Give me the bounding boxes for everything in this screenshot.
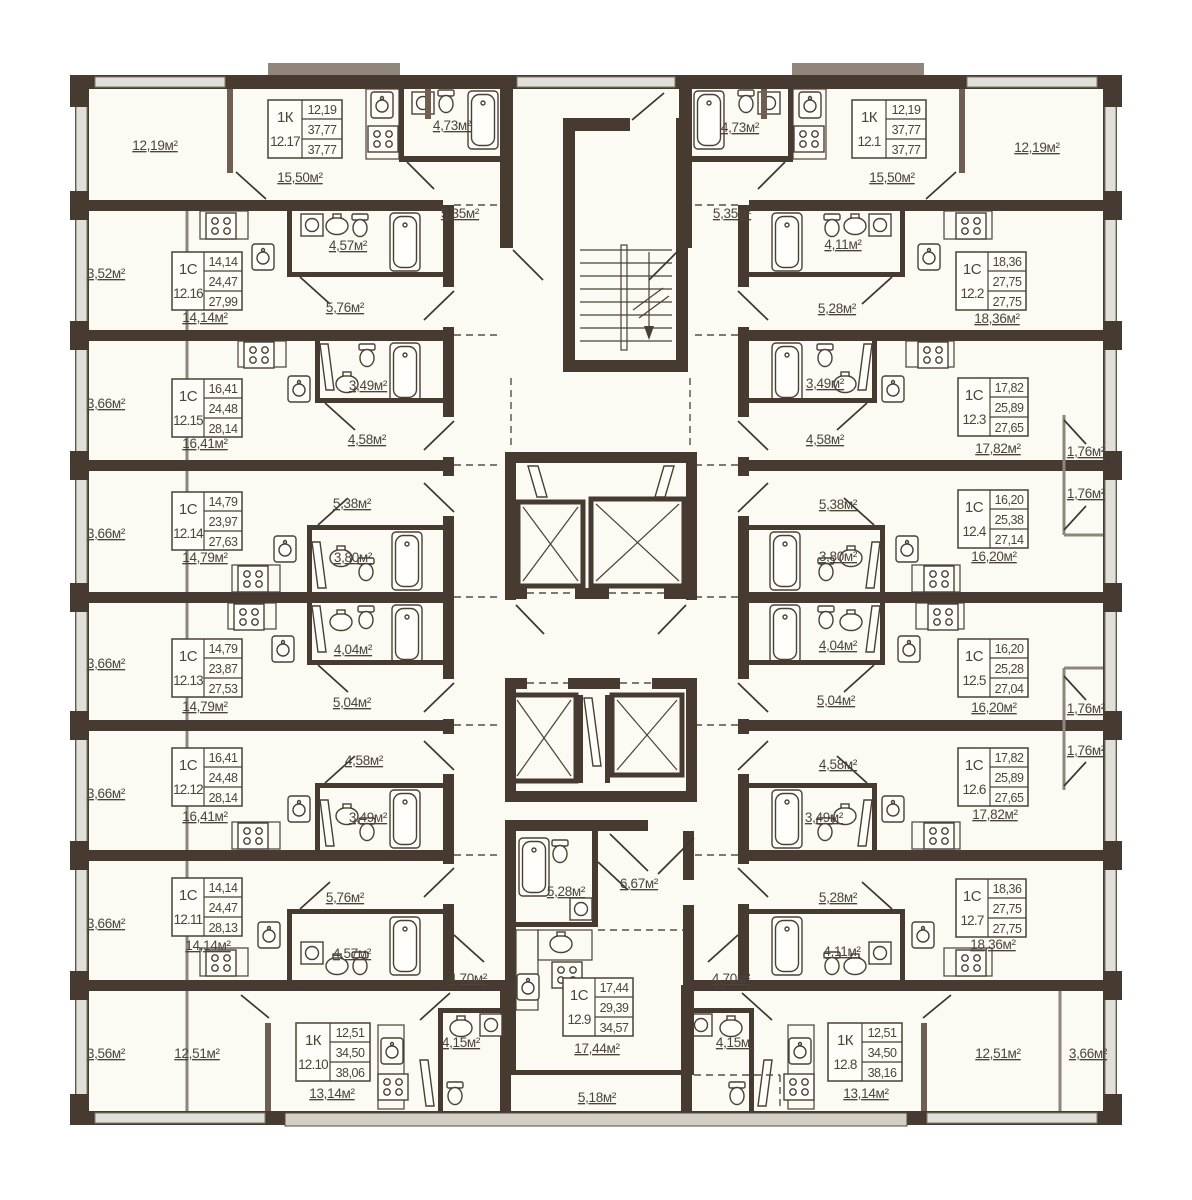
- svg-text:1С: 1С: [965, 757, 984, 774]
- svg-text:37,77: 37,77: [308, 143, 337, 157]
- area-label: 4,04м²: [334, 642, 373, 657]
- svg-text:38,16: 38,16: [868, 1066, 897, 1080]
- area-label: 4,04м²: [819, 638, 858, 653]
- svg-text:12,51: 12,51: [868, 1026, 897, 1040]
- area-label: 14,79м²: [182, 699, 228, 714]
- svg-text:37,77: 37,77: [892, 123, 921, 137]
- svg-text:27,99: 27,99: [209, 295, 238, 309]
- area-label: 3,49м²: [349, 378, 388, 393]
- area-label: 3,80м²: [819, 549, 858, 564]
- svg-text:1С: 1С: [179, 388, 198, 405]
- svg-text:1С: 1С: [963, 261, 982, 278]
- unit-info-12.9: 1С 12.9 17,44 29,39 34,57: [563, 978, 633, 1036]
- area-label: 4,73м²: [721, 120, 760, 135]
- area-label: 4,15м²: [716, 1035, 755, 1050]
- unit-info-12.4: 1С 12.4 16,20 25,38 27,14: [958, 490, 1028, 548]
- svg-text:1С: 1С: [179, 501, 198, 518]
- unit-info-12.2: 1С 12.2 18,36 27,75 27,75: [956, 252, 1026, 310]
- area-label: 3,66м²: [1069, 1046, 1108, 1061]
- svg-text:25,28: 25,28: [995, 662, 1024, 676]
- balcony-rail: [285, 1113, 907, 1126]
- unit-type: 1К: [277, 109, 294, 126]
- area-label: 3,66м²: [87, 786, 126, 801]
- area-label: 5,38м²: [333, 496, 372, 511]
- area-label: 17,44м²: [574, 1041, 620, 1056]
- area-label: 3,66м²: [87, 656, 126, 671]
- svg-text:12.16: 12.16: [173, 286, 203, 301]
- area-label: 3,52м²: [87, 266, 126, 281]
- svg-text:1С: 1С: [965, 387, 984, 404]
- area-label: 4,57м²: [333, 946, 372, 961]
- svg-text:12.14: 12.14: [173, 526, 204, 541]
- floor-plan-page: 1К 12.17 12,19 37,77 37,77 1С 12.16 14,1…: [0, 0, 1192, 1200]
- svg-text:12.3: 12.3: [962, 412, 985, 427]
- svg-text:24,47: 24,47: [209, 275, 238, 289]
- area-label: 1,76м²: [1067, 743, 1106, 758]
- svg-text:12.8: 12.8: [833, 1057, 856, 1072]
- svg-text:27,75: 27,75: [993, 902, 1022, 916]
- area-label: 4,11м²: [824, 237, 862, 252]
- area-label: 15,50м²: [277, 170, 323, 185]
- svg-text:27,14: 27,14: [995, 533, 1024, 547]
- svg-text:25,38: 25,38: [995, 513, 1024, 527]
- area-label: 16,41м²: [182, 436, 228, 451]
- svg-text:28,14: 28,14: [209, 422, 238, 436]
- svg-text:1К: 1К: [837, 1032, 854, 1049]
- svg-text:12.5: 12.5: [962, 673, 985, 688]
- svg-text:1С: 1С: [179, 648, 198, 665]
- floor-plan-drawing: 1К 12.17 12,19 37,77 37,77 1С 12.16 14,1…: [0, 0, 1192, 1200]
- area-label: 5,76м²: [326, 890, 365, 905]
- area-label: 3,80м²: [334, 550, 373, 565]
- area-label: 13,14м²: [843, 1086, 889, 1101]
- area-label: 5,76м²: [326, 300, 365, 315]
- svg-text:1К: 1К: [861, 109, 878, 126]
- area-label: 6,67м²: [620, 876, 659, 891]
- area-label: 4,58м²: [345, 753, 384, 768]
- svg-text:38,06: 38,06: [336, 1066, 365, 1080]
- area-label: 18,36м²: [974, 311, 1020, 326]
- area-label: 14,14м²: [185, 938, 231, 953]
- unit-info-12.13: 1С 12.13 14,79 23,87 27,53: [172, 639, 242, 697]
- svg-text:12.9: 12.9: [567, 1012, 590, 1027]
- svg-text:37,77: 37,77: [308, 123, 337, 137]
- area-label: 4,58м²: [819, 757, 858, 772]
- svg-text:27,75: 27,75: [993, 922, 1022, 936]
- svg-text:12.2: 12.2: [960, 286, 983, 301]
- area-label: 3,66м²: [87, 396, 126, 411]
- area-label: 5,04м²: [333, 695, 372, 710]
- area-label: 16,41м²: [182, 809, 228, 824]
- svg-text:18,36: 18,36: [993, 255, 1022, 269]
- svg-text:27,75: 27,75: [993, 275, 1022, 289]
- svg-text:12.11: 12.11: [174, 912, 203, 927]
- svg-text:12.1: 12.1: [857, 134, 880, 149]
- svg-text:28,13: 28,13: [209, 921, 238, 935]
- area-label: 16,20м²: [971, 549, 1017, 564]
- area-label: 3,49м²: [806, 376, 845, 391]
- svg-text:34,57: 34,57: [600, 1021, 629, 1035]
- svg-text:37,77: 37,77: [892, 143, 921, 157]
- area-label: 1,76м²: [1067, 444, 1106, 459]
- unit-info-12.10: 1К 12.10 12,51 34,50 38,06: [296, 1023, 370, 1081]
- svg-text:12.10: 12.10: [298, 1057, 328, 1072]
- svg-text:25,89: 25,89: [995, 401, 1024, 415]
- svg-text:12,19: 12,19: [308, 103, 337, 117]
- area-label: 1,76м²: [1067, 486, 1106, 501]
- svg-text:27,65: 27,65: [995, 791, 1024, 805]
- svg-text:16,20: 16,20: [995, 642, 1024, 656]
- svg-text:12,51: 12,51: [336, 1026, 365, 1040]
- area-label: 14,14м²: [182, 310, 228, 325]
- area-label: 4,15м²: [442, 1035, 481, 1050]
- area-label: 14,79м²: [182, 550, 228, 565]
- unit-info-12.7: 1С 12.7 18,36 27,75 27,75: [956, 879, 1026, 937]
- area-label: 4,11м²: [823, 944, 861, 959]
- svg-text:14,79: 14,79: [209, 642, 238, 656]
- svg-text:14,79: 14,79: [209, 495, 238, 509]
- unit-info-12.14: 1С 12.14 14,79 23,97 27,63: [172, 492, 242, 550]
- svg-text:1С: 1С: [963, 888, 982, 905]
- svg-text:24,48: 24,48: [209, 771, 238, 785]
- unit-info-12.5: 1С 12.5 16,20 25,28 27,04: [958, 639, 1028, 697]
- unit-info-12.12: 1С 12.12 16,41 24,48 28,14: [172, 748, 242, 806]
- svg-text:1С: 1С: [179, 757, 198, 774]
- unit-info-12.3: 1С 12.3 17,82 25,89 27,65: [958, 378, 1028, 436]
- unit-info-12.17: 1К 12.17 12,19 37,77 37,77: [268, 100, 342, 158]
- unit-number: 12.17: [270, 134, 300, 149]
- svg-text:1С: 1С: [965, 499, 984, 516]
- svg-text:24,47: 24,47: [209, 901, 238, 915]
- svg-text:12.15: 12.15: [173, 413, 203, 428]
- svg-text:16,20: 16,20: [995, 493, 1024, 507]
- area-label: 3,56м²: [87, 1046, 126, 1061]
- toilet-icon: [552, 840, 568, 863]
- svg-text:12.13: 12.13: [173, 673, 203, 688]
- svg-text:12.12: 12.12: [173, 782, 203, 797]
- svg-text:23,87: 23,87: [209, 662, 238, 676]
- area-label: 5,35м²: [713, 206, 752, 221]
- svg-text:12.7: 12.7: [960, 913, 983, 928]
- area-label: 5,28м²: [819, 890, 858, 905]
- svg-text:34,50: 34,50: [868, 1046, 897, 1060]
- svg-text:27,75: 27,75: [993, 295, 1022, 309]
- area-label: 17,82м²: [972, 807, 1018, 822]
- area-label: 5,28м²: [818, 301, 857, 316]
- svg-text:16,41: 16,41: [209, 382, 238, 396]
- svg-text:17,82: 17,82: [995, 751, 1024, 765]
- svg-text:23,97: 23,97: [209, 515, 238, 529]
- area-label: 4,70м²: [712, 971, 751, 986]
- area-label: 5,28м²: [547, 884, 586, 899]
- svg-text:18,36: 18,36: [993, 882, 1022, 896]
- area-label: 3,66м²: [87, 916, 126, 931]
- area-label: 4,58м²: [806, 432, 845, 447]
- svg-text:27,65: 27,65: [995, 421, 1024, 435]
- unit-info-12.15: 1С 12.15 16,41 24,48 28,14: [172, 379, 242, 437]
- area-label: 3,49м²: [805, 810, 844, 825]
- svg-text:1С: 1С: [570, 987, 589, 1004]
- svg-text:12.6: 12.6: [962, 782, 985, 797]
- svg-text:1С: 1С: [179, 261, 198, 278]
- svg-text:27,63: 27,63: [209, 535, 238, 549]
- svg-text:1С: 1С: [965, 648, 984, 665]
- area-label: 12,51м²: [975, 1046, 1021, 1061]
- area-label: 13,14м²: [309, 1086, 355, 1101]
- area-label: 3,49м²: [349, 810, 388, 825]
- unit-info-12.8: 1К 12.8 12,51 34,50 38,16: [828, 1023, 902, 1081]
- area-label: 4,73м²: [433, 118, 472, 133]
- svg-text:17,44: 17,44: [600, 981, 629, 995]
- area-label: 4,58м²: [348, 432, 387, 447]
- bathtub-icon: [519, 838, 549, 896]
- svg-text:1С: 1С: [179, 887, 198, 904]
- svg-text:16,41: 16,41: [209, 751, 238, 765]
- unit-info-12.11: 1С 12.11 14,14 24,47 28,13: [172, 878, 242, 936]
- svg-text:27,53: 27,53: [209, 682, 238, 696]
- unit-info-12.6: 1С 12.6 17,82 25,89 27,65: [958, 748, 1028, 806]
- svg-text:29,39: 29,39: [600, 1001, 629, 1015]
- svg-text:25,89: 25,89: [995, 771, 1024, 785]
- area-label: 4,70м²: [449, 971, 488, 986]
- area-label: 12,19м²: [132, 138, 178, 153]
- kitchen-sink-icon: [517, 974, 539, 1000]
- area-label: 1,76м²: [1067, 701, 1106, 716]
- washer-icon: [570, 898, 592, 920]
- svg-text:12,19: 12,19: [892, 103, 921, 117]
- area-label: 4,57м²: [329, 238, 368, 253]
- area-label: 18,36м²: [970, 937, 1016, 952]
- entrance-door: [517, 77, 675, 87]
- svg-text:12.4: 12.4: [962, 524, 986, 539]
- svg-text:14,14: 14,14: [209, 881, 238, 895]
- area-label: 5,04м²: [817, 693, 856, 708]
- svg-text:17,82: 17,82: [995, 381, 1024, 395]
- svg-text:28,14: 28,14: [209, 791, 238, 805]
- area-label: 15,50м²: [869, 170, 915, 185]
- area-label: 12,51м²: [174, 1046, 220, 1061]
- area-label: 5,35м²: [441, 206, 480, 221]
- svg-text:24,48: 24,48: [209, 402, 238, 416]
- area-label: 5,18м²: [578, 1090, 617, 1105]
- area-label: 12,19м²: [1014, 140, 1060, 155]
- area-label: 3,66м²: [87, 526, 126, 541]
- svg-text:1К: 1К: [305, 1032, 322, 1049]
- svg-text:14,14: 14,14: [209, 255, 238, 269]
- area-label: 5,38м²: [819, 497, 858, 512]
- area-label: 16,20м²: [971, 700, 1017, 715]
- svg-text:34,50: 34,50: [336, 1046, 365, 1060]
- area-label: 17,82м²: [975, 441, 1021, 456]
- svg-text:27,04: 27,04: [995, 682, 1024, 696]
- unit-info-12.16: 1С 12.16 14,14 24,47 27,99: [172, 252, 242, 310]
- unit-info-12.1: 1К 12.1 12,19 37,77 37,77: [852, 100, 926, 158]
